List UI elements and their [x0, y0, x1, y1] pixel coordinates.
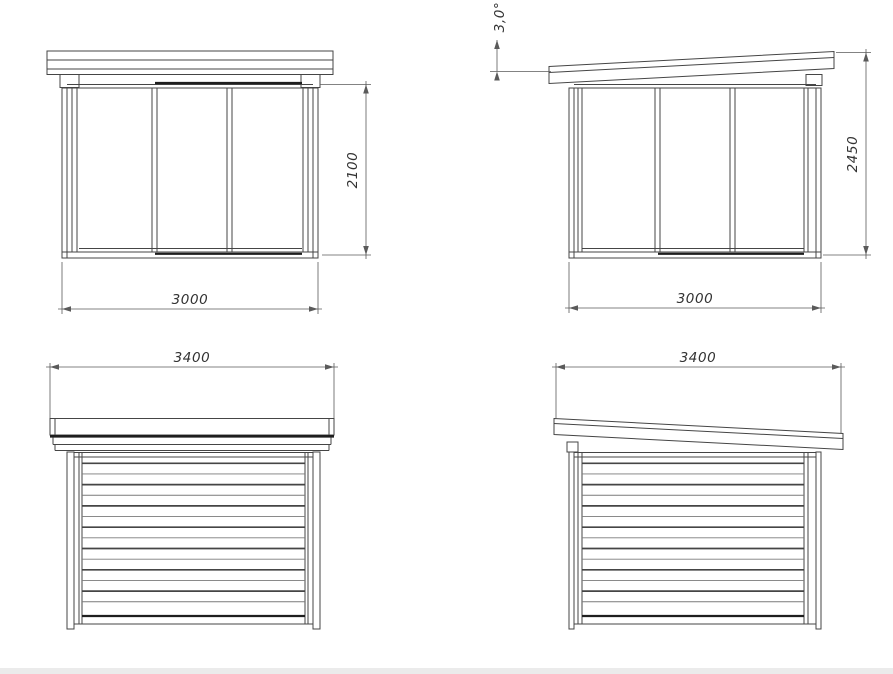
drawing-line [569, 305, 578, 311]
drawing-line [832, 364, 841, 370]
view-front-elevation: 2100 3000 [47, 51, 371, 314]
drawing-line [863, 246, 869, 255]
glazed-wall-side [569, 85, 821, 259]
drawing-line [363, 246, 369, 255]
corner-post-right [313, 452, 320, 629]
drawing-line [863, 53, 869, 62]
dimension-front-height: 2100 [320, 81, 371, 259]
drawing-line [549, 52, 834, 84]
corner-post-right [816, 88, 821, 258]
corner-post-right [313, 88, 318, 258]
footer-bar [0, 668, 893, 674]
drawing-line [309, 306, 318, 312]
technical-drawing-canvas: 2100 3000 [0, 0, 893, 674]
drawing-line [556, 364, 565, 370]
view-rear-elevation: 3400 [46, 350, 338, 629]
dimension-roof-angle: 3,0° [490, 2, 551, 81]
glazed-wall-front [62, 83, 318, 258]
side-height-label: 2450 [845, 136, 861, 173]
drawing-line [62, 306, 71, 312]
drawing-line [50, 419, 334, 436]
corner-post-left [62, 88, 67, 258]
dimension-side-width: 3000 [565, 262, 825, 313]
drawing-line [494, 40, 500, 49]
rear-roof-width-label: 3400 [174, 350, 211, 366]
eave-block-right [806, 75, 822, 86]
sideclad-roof-width-label: 3400 [680, 350, 717, 366]
clad-wall-rear [67, 452, 320, 629]
corner-post-right [816, 452, 821, 629]
front-width-label: 3000 [172, 292, 209, 308]
clad-wall-side [569, 452, 821, 629]
cladding-boards [82, 463, 305, 601]
drawing-line [494, 72, 500, 81]
dimension-front-width: 3000 [58, 262, 322, 314]
drawing-line [325, 364, 334, 370]
corner-post-left [569, 452, 574, 629]
dimension-side-height: 2450 [823, 49, 871, 259]
view-side-elevation-clad: 3400 [552, 350, 845, 629]
front-height-label: 2100 [345, 152, 361, 189]
corner-post-left [569, 88, 574, 258]
roof-sloped-glazed-side [549, 52, 834, 86]
roof-angle-label: 3,0° [492, 2, 508, 33]
side-width-label: 3000 [677, 291, 714, 307]
drawing-line [363, 85, 369, 94]
drawing-line [50, 364, 59, 370]
roof-rear [50, 419, 334, 451]
eave-block-left [567, 442, 578, 452]
dimension-rear-roof-width: 3400 [46, 350, 338, 418]
corner-post-left [67, 452, 74, 629]
drawing-line [47, 69, 333, 75]
eave-block-right [301, 75, 320, 88]
view-side-elevation-glazed: 3,0° 2450 3000 [490, 2, 871, 313]
roof-sloped-clad-side [554, 419, 843, 453]
eave-block-left [60, 75, 79, 88]
drawing-line [812, 305, 821, 311]
drawing-line [554, 419, 843, 450]
cladding-boards [582, 463, 804, 601]
